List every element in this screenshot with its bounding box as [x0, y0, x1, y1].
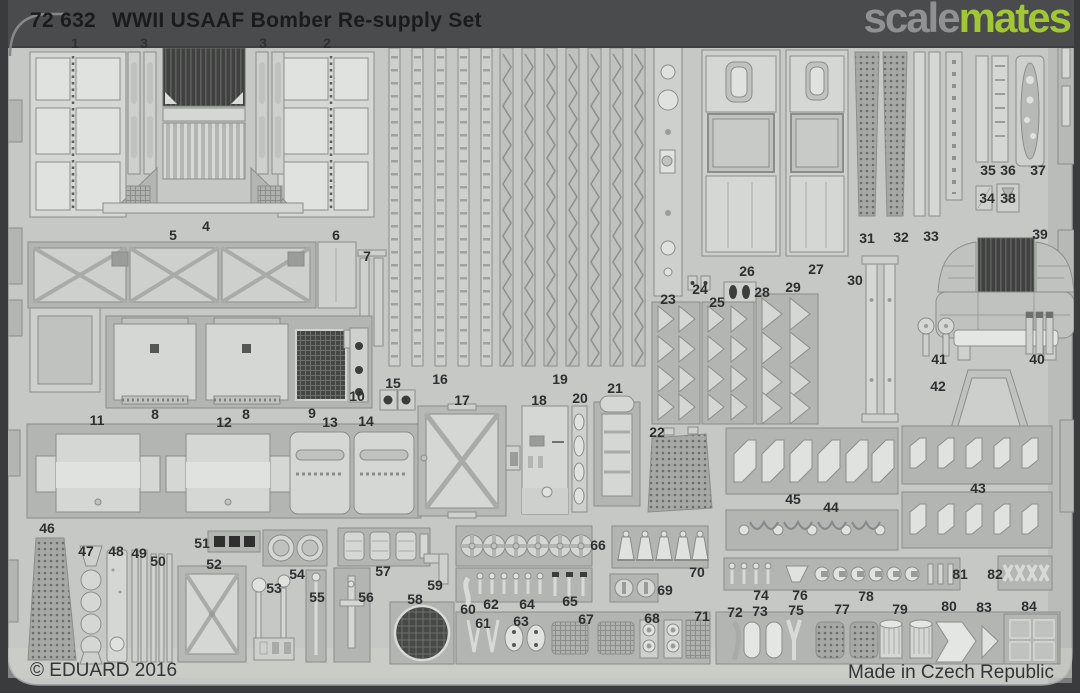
photoetch-fret-graphic: [0, 0, 1080, 693]
part-group-11-14: [27, 424, 421, 518]
part-15: [380, 390, 415, 410]
product-photo-scalemates: 72 632WWII USAAF Bomber Re-supply Set sc…: [0, 0, 1080, 693]
part-group-8-10: [106, 316, 372, 408]
part-group-26-27: [702, 50, 848, 256]
